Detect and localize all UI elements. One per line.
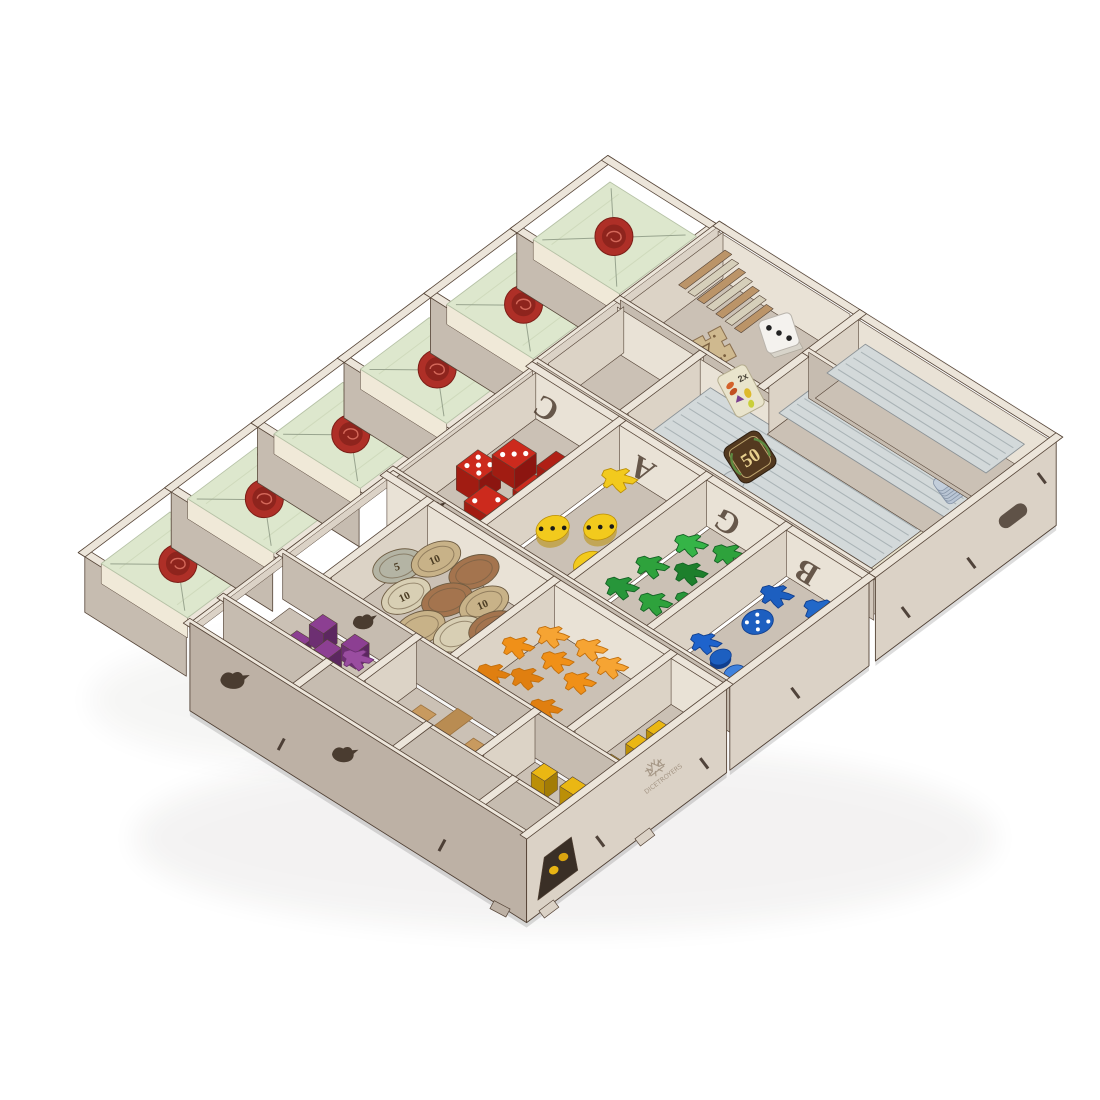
- product-photo-stage: 2x50510101010DICETROYERSCAGB: [0, 0, 1100, 1100]
- organizer-photo: 2x50510101010DICETROYERSCAGB: [0, 0, 1100, 1100]
